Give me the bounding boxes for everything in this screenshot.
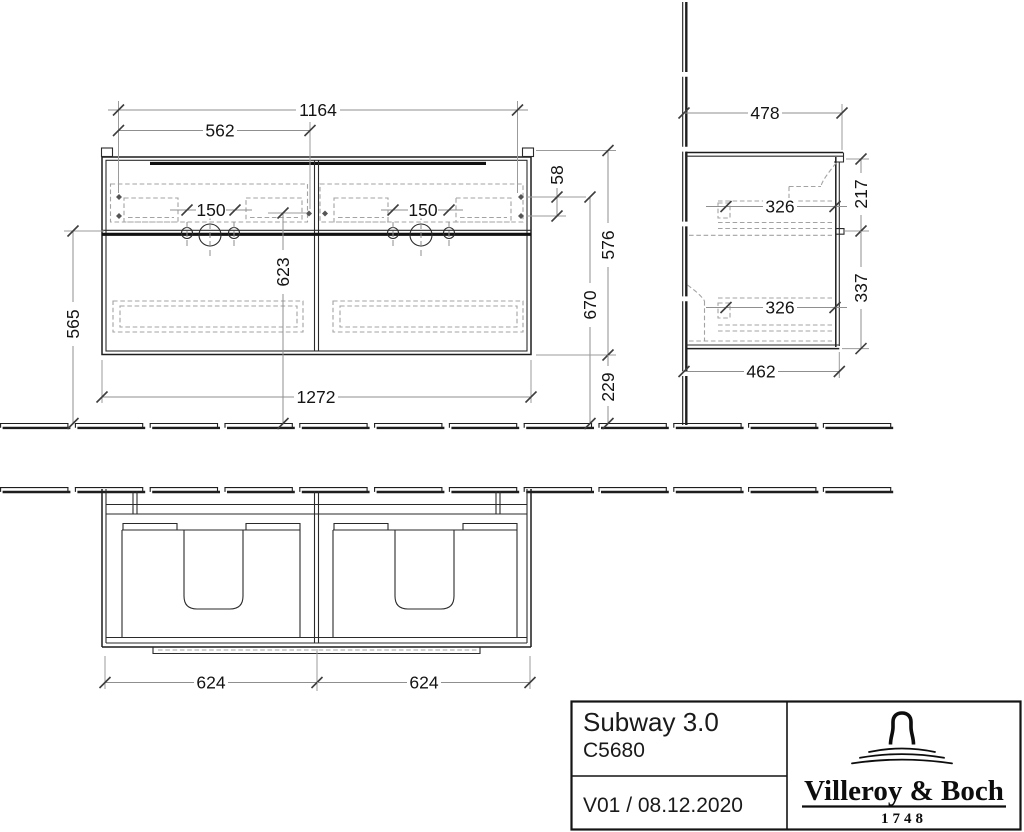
wall-bracket-right bbox=[523, 148, 534, 157]
brand-name: Villeroy & Boch bbox=[804, 775, 1004, 807]
plan-basin-right bbox=[333, 524, 517, 639]
dim-label-337: 337 bbox=[851, 273, 871, 302]
dim-label-624-right: 624 bbox=[409, 673, 438, 693]
dim-label-670: 670 bbox=[580, 290, 600, 319]
front-basin-hidden-lines bbox=[111, 184, 524, 222]
floor-line-upper bbox=[0, 424, 893, 428]
dim-label-576: 576 bbox=[598, 230, 618, 259]
dim-624-left: 624 bbox=[100, 649, 323, 693]
vb-logo: Villeroy & Boch 1748 bbox=[802, 713, 1006, 827]
side-front-notch bbox=[836, 229, 844, 235]
dim-337: 337 bbox=[842, 231, 871, 354]
dim-label-1272: 1272 bbox=[297, 387, 336, 407]
product-series: Subway 3.0 bbox=[583, 707, 719, 737]
technical-drawing-sheet: 1164 562 150 150 58 bbox=[0, 0, 1024, 832]
dim-326-upper: 326 bbox=[706, 197, 847, 217]
dim-150-right: 150 bbox=[381, 200, 463, 220]
basin-bowl-right bbox=[395, 530, 454, 609]
wall-bracket-left bbox=[102, 148, 113, 157]
dim-label-217: 217 bbox=[851, 179, 871, 208]
article-number: C5680 bbox=[583, 739, 645, 762]
floor-line-lower bbox=[0, 488, 893, 492]
dim-58: 58 bbox=[526, 165, 586, 221]
side-view: 478 326 326 217 337 bbox=[679, 103, 872, 382]
logo-waves-icon bbox=[852, 749, 952, 764]
dim-label-565: 565 bbox=[63, 309, 83, 338]
dim-label-326-lower: 326 bbox=[765, 298, 794, 318]
basin-bowl-left bbox=[184, 530, 243, 609]
dim-label-326-upper: 326 bbox=[765, 197, 794, 217]
dim-label-150-right: 150 bbox=[408, 200, 437, 220]
wall-line bbox=[683, 2, 687, 425]
side-cabinet-outline bbox=[686, 153, 844, 349]
dim-478: 478 bbox=[679, 103, 848, 150]
side-drawer-lower-hidden bbox=[688, 285, 833, 341]
dim-label-1164: 1164 bbox=[299, 100, 337, 120]
title-block: Subway 3.0 C5680 V01 / 08.12.2020 Viller… bbox=[572, 702, 1021, 830]
dim-label-58: 58 bbox=[547, 165, 567, 184]
dim-229: 229 bbox=[598, 355, 618, 429]
plan-basin-left bbox=[122, 524, 300, 639]
dim-label-462: 462 bbox=[746, 362, 775, 382]
dim-624-right: 624 bbox=[317, 656, 536, 693]
dim-label-229: 229 bbox=[598, 372, 618, 401]
dim-326-lower: 326 bbox=[706, 298, 847, 318]
dim-label-562: 562 bbox=[205, 121, 234, 141]
front-view: 1164 562 150 150 58 bbox=[63, 100, 618, 429]
side-drawer-upper-hidden bbox=[689, 163, 836, 235]
dim-1272: 1272 bbox=[97, 360, 537, 407]
plan-cabinet-outline bbox=[102, 489, 531, 647]
dim-label-478: 478 bbox=[750, 103, 779, 123]
dim-462: 462 bbox=[679, 352, 845, 382]
plan-view: 624 624 bbox=[100, 489, 536, 693]
amphora-icon bbox=[891, 713, 914, 745]
dim-217: 217 bbox=[845, 154, 871, 237]
drawing-canvas: 1164 562 150 150 58 bbox=[0, 0, 1024, 832]
dim-label-624-left: 624 bbox=[196, 673, 225, 693]
brand-year: 1748 bbox=[881, 811, 927, 827]
dim-label-150-left: 150 bbox=[196, 200, 225, 220]
front-cabinet-outline bbox=[102, 148, 534, 355]
dim-150-left: 150 bbox=[170, 200, 252, 220]
version-date: V01 / 08.12.2020 bbox=[583, 794, 743, 817]
dim-565: 565 bbox=[63, 226, 104, 430]
dim-label-623: 623 bbox=[273, 257, 293, 286]
dim-670: 670 bbox=[580, 192, 600, 430]
